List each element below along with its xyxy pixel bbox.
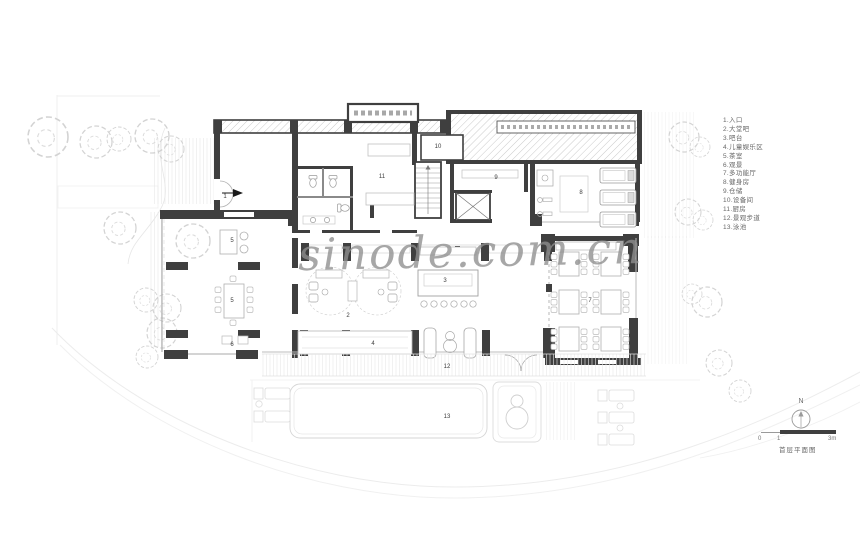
- floorplan-canvas: sinode.com.cn 1 2 3 4 5 5 6 7 8 9 10 11 …: [0, 0, 860, 555]
- plan-caption: 首层平面图: [779, 444, 817, 454]
- elevator: [456, 193, 490, 220]
- north-label: N: [793, 398, 809, 405]
- room-label-3: 3: [443, 278, 446, 284]
- room-label-6: 6: [230, 342, 233, 348]
- bar-counter: [418, 247, 478, 307]
- legend: 1.入口 2.大堂吧 3.吧台 4.儿童娱乐区 5.茶室 6.观景 7.多功能厅…: [723, 117, 763, 233]
- north-arrow-icon: [790, 408, 812, 430]
- legend-item: 3.吧台: [723, 135, 763, 144]
- legend-item: 4.儿童娱乐区: [723, 144, 763, 153]
- walkway: [262, 354, 646, 376]
- dining-tables: [551, 242, 629, 351]
- room-label-1: 1: [223, 194, 226, 200]
- tea-room-furniture: [215, 230, 253, 344]
- legend-item: 1.入口: [723, 117, 763, 126]
- legend-item: 10.设备间: [723, 197, 763, 206]
- scale-bar-thin-segment: [761, 432, 780, 433]
- scale-tick-3m: 3m: [828, 436, 836, 442]
- floorplan-drawing: [0, 0, 860, 555]
- legend-item: 9.仓储: [723, 188, 763, 197]
- scale-bar: [761, 429, 839, 435]
- scale-bar-thick-segment: [780, 430, 836, 434]
- kitchen-counters: [366, 144, 414, 205]
- room-label-12: 12: [444, 364, 451, 370]
- scale-tick-0: 0: [758, 436, 761, 442]
- legend-item: 11.厨房: [723, 206, 763, 215]
- legend-item: 8.健身房: [723, 179, 763, 188]
- legend-item: 5.茶室: [723, 153, 763, 162]
- scale-tick-1: 1: [777, 436, 780, 442]
- lounge-furniture: [306, 267, 401, 315]
- room-label-10: 10: [435, 144, 442, 150]
- room-label-4: 4: [371, 341, 374, 347]
- room-label-13: 13: [444, 414, 451, 420]
- kids-area-furniture: [298, 328, 476, 358]
- legend-item: 13.泳池: [723, 224, 763, 233]
- room-label-11: 11: [379, 174, 385, 180]
- room-label-8: 8: [579, 190, 582, 196]
- room-label-7: 7: [588, 298, 591, 304]
- pool-area: [250, 380, 700, 445]
- legend-item: 12.景观步道: [723, 215, 763, 224]
- gym-equipment: [537, 168, 636, 227]
- room-label-2: 2: [346, 313, 349, 319]
- room-label-5b: 5: [230, 298, 233, 304]
- storage-shelf: [462, 170, 518, 178]
- restroom-fixtures: [303, 176, 349, 225]
- paving-stripes: [152, 138, 214, 204]
- legend-item: 7.多功能厅: [723, 170, 763, 179]
- room-label-9: 9: [494, 175, 497, 181]
- room-label-5a: 5: [230, 238, 233, 244]
- legend-item: 2.大堂吧: [723, 126, 763, 135]
